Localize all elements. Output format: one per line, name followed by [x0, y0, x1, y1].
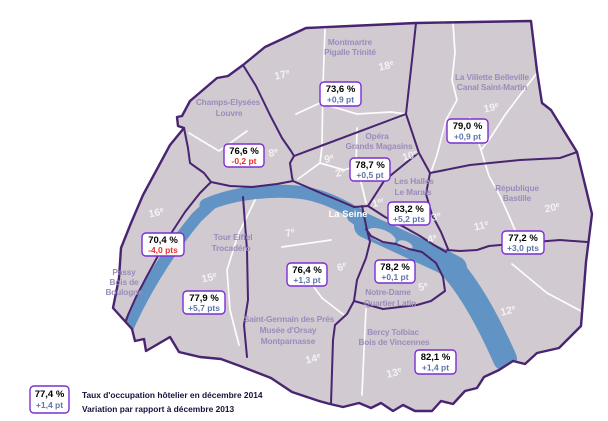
svg-text:+3,0 pts: +3,0 pts: [507, 243, 539, 253]
svg-text:Passy: Passy: [112, 267, 136, 277]
svg-text:La Villette Belleville: La Villette Belleville: [455, 72, 530, 82]
svg-text:Bercy Tolbiac: Bercy Tolbiac: [367, 327, 419, 337]
svg-text:Le Marais: Le Marais: [395, 187, 432, 197]
svg-text:-0,2 pt: -0,2 pt: [231, 156, 256, 166]
svg-text:Montparnasse: Montparnasse: [261, 336, 316, 346]
svg-text:Bois de: Bois de: [110, 277, 139, 287]
svg-text:Champs-Elysées: Champs-Elysées: [196, 97, 261, 107]
svg-text:-4,0 pts: -4,0 pts: [148, 245, 178, 255]
svg-text:79,0 %: 79,0 %: [453, 121, 483, 132]
svg-text:+1,3 pt: +1,3 pt: [293, 275, 320, 285]
svg-text:République: République: [495, 183, 539, 193]
svg-text:Montmartre: Montmartre: [328, 37, 373, 47]
svg-text:+1,4 pt: +1,4 pt: [36, 400, 63, 410]
svg-text:+5,2 pts: +5,2 pts: [393, 214, 425, 224]
svg-text:73,6 %: 73,6 %: [326, 84, 356, 95]
svg-text:+5,7 pts: +5,7 pts: [188, 303, 220, 313]
svg-text:Boulogne: Boulogne: [105, 287, 143, 297]
svg-text:Variation par rapport à décemb: Variation par rapport à décembre 2013: [82, 404, 235, 414]
svg-text:La Seine: La Seine: [328, 209, 367, 220]
svg-text:Quartier Latin: Quartier Latin: [364, 298, 416, 308]
svg-text:Bastille: Bastille: [503, 193, 532, 203]
svg-text:Trocadéro: Trocadéro: [212, 243, 251, 253]
svg-text:Pigalle Trinité: Pigalle Trinité: [324, 47, 376, 57]
svg-text:Bois de Vincennes: Bois de Vincennes: [358, 337, 430, 347]
svg-text:+0,1 pt: +0,1 pt: [381, 272, 408, 282]
svg-text:Opéra: Opéra: [365, 131, 389, 141]
svg-text:+1,4 pt: +1,4 pt: [422, 363, 449, 373]
svg-text:82,1 %: 82,1 %: [421, 352, 451, 363]
svg-text:77,4 %: 77,4 %: [35, 389, 65, 400]
svg-text:Notre-Dame: Notre-Dame: [365, 287, 411, 297]
svg-text:+0,9 pt: +0,9 pt: [327, 95, 354, 105]
svg-text:Les Halles: Les Halles: [394, 176, 434, 186]
svg-text:+0,5 pt: +0,5 pt: [356, 170, 383, 180]
svg-text:+0,9 pt: +0,9 pt: [454, 132, 481, 142]
svg-text:Tour Eiffel: Tour Eiffel: [214, 232, 253, 242]
svg-text:Grands Magasins: Grands Magasins: [346, 141, 413, 151]
svg-text:Canal Saint-Martin: Canal Saint-Martin: [457, 82, 527, 92]
svg-text:Musée d'Orsay: Musée d'Orsay: [260, 325, 317, 335]
svg-text:Taux d'occupation hôtelier en: Taux d'occupation hôtelier en décembre 2…: [82, 390, 263, 400]
svg-text:Saint-Germain des Prés: Saint-Germain des Prés: [244, 314, 335, 324]
svg-text:Louvre: Louvre: [216, 108, 243, 118]
